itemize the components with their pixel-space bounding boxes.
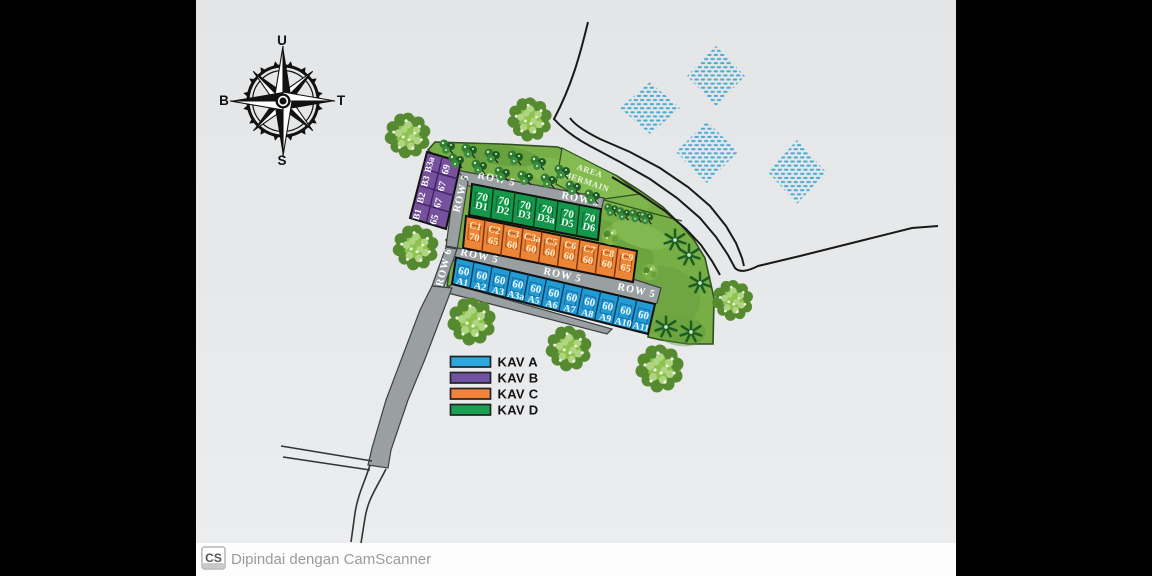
svg-text:65: 65	[619, 262, 632, 275]
svg-text:KAV A: KAV A	[498, 355, 539, 370]
svg-text:65: 65	[487, 235, 500, 248]
svg-text:KAV B: KAV B	[498, 371, 539, 386]
svg-text:KAV C: KAV C	[498, 387, 539, 402]
svg-text:KAV D: KAV D	[498, 403, 539, 418]
svg-text:U: U	[277, 33, 287, 48]
svg-text:70: 70	[468, 232, 481, 245]
svg-text:S: S	[277, 153, 286, 168]
svg-text:60: 60	[582, 255, 595, 268]
svg-text:60: 60	[600, 258, 613, 271]
svg-text:Dipindai dengan CamScanner: Dipindai dengan CamScanner	[231, 551, 431, 568]
svg-text:T: T	[337, 93, 346, 108]
svg-text:CS: CS	[205, 551, 222, 565]
svg-text:60: 60	[506, 239, 519, 252]
svg-text:B: B	[219, 93, 229, 108]
svg-text:60: 60	[563, 251, 576, 264]
svg-text:60: 60	[525, 243, 538, 256]
svg-text:60: 60	[544, 247, 557, 260]
